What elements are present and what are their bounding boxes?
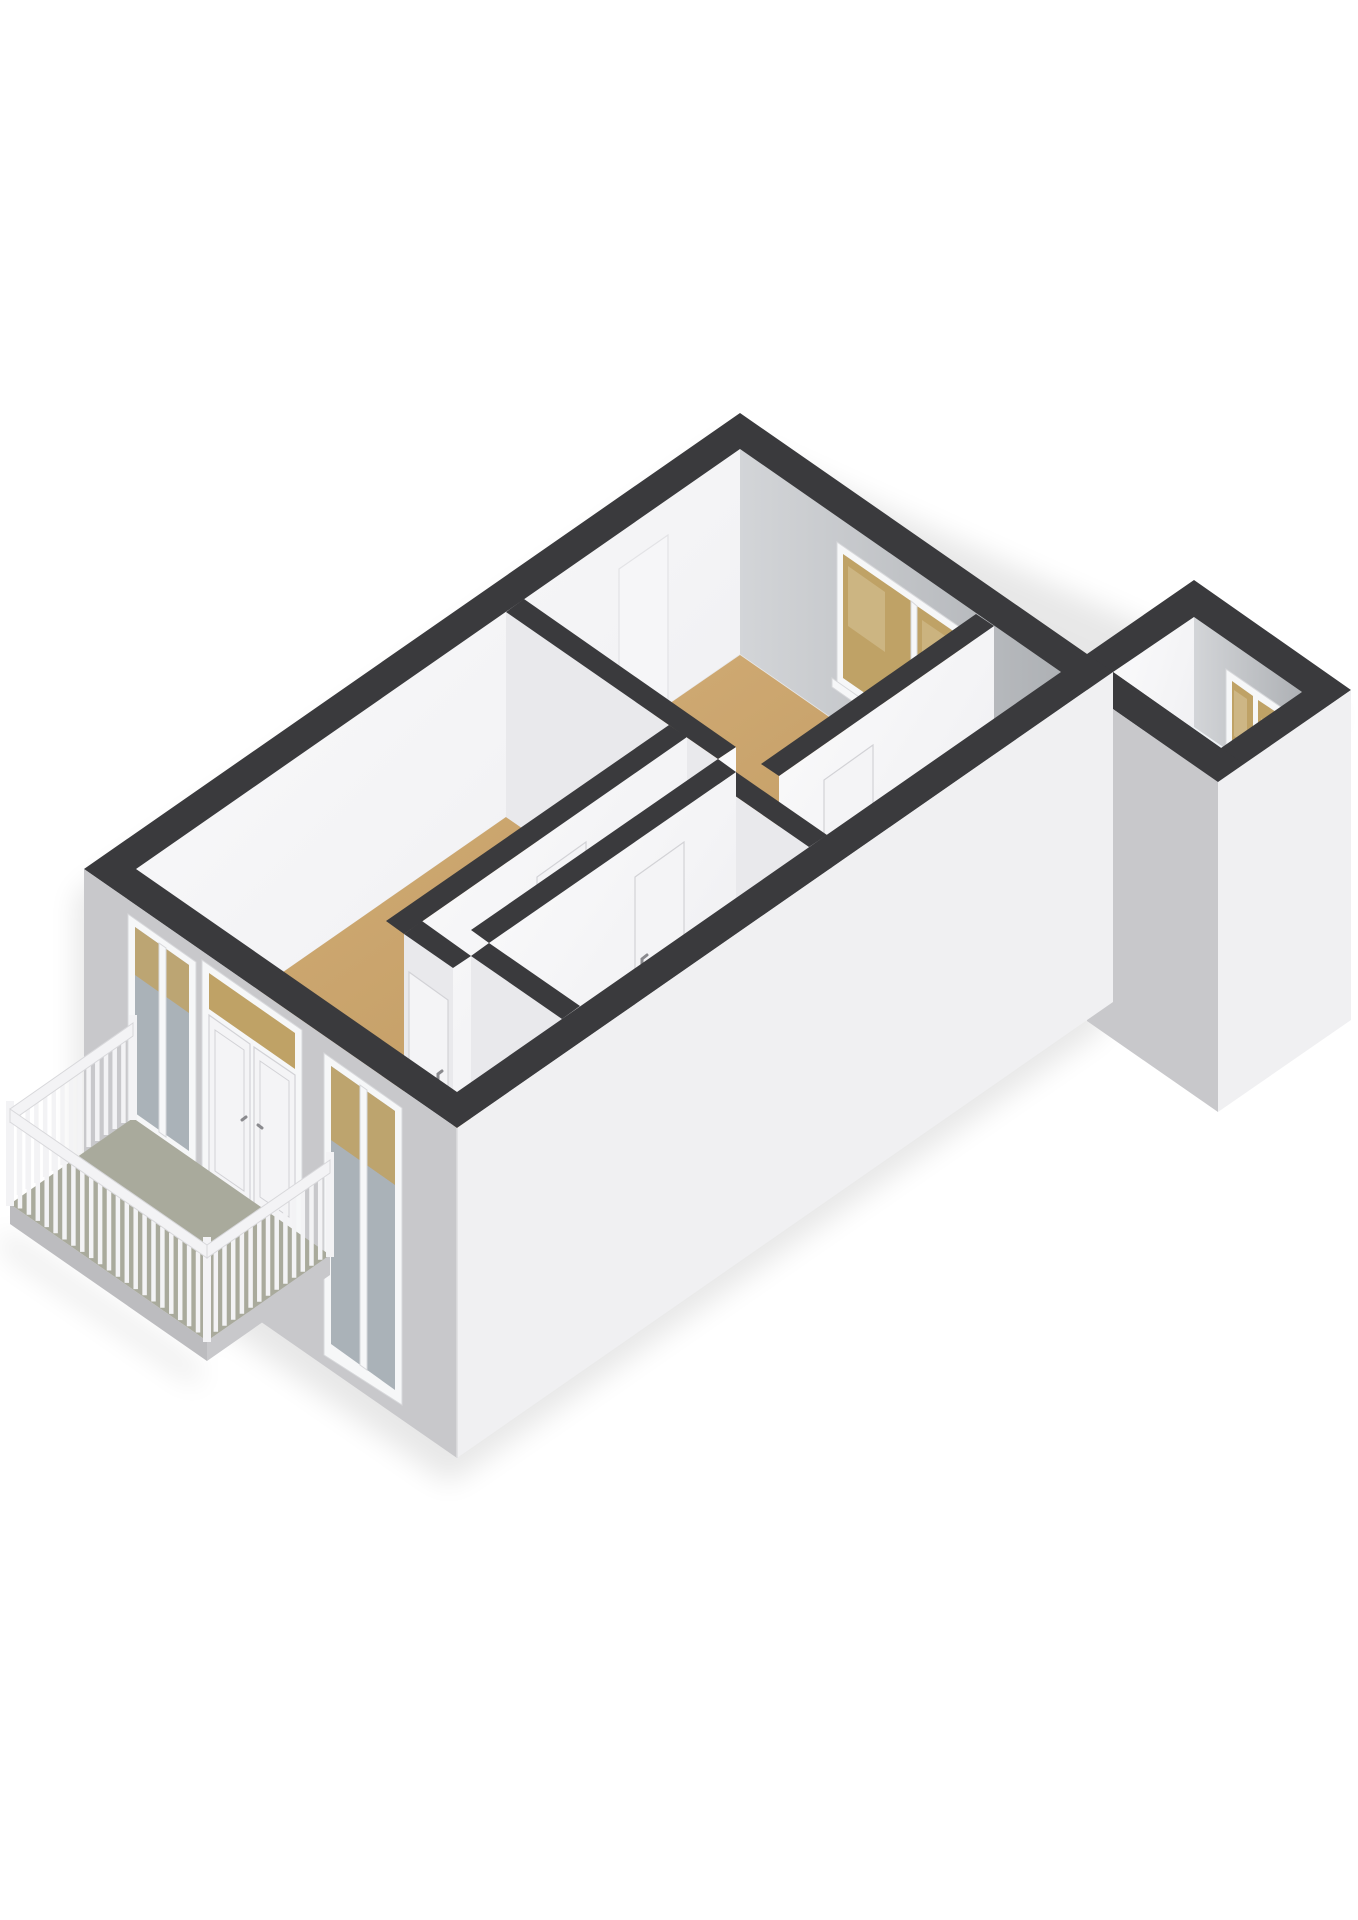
floorplan-viewport[interactable] <box>0 0 1358 1920</box>
bottom-room-window <box>324 1053 402 1405</box>
bottom-room-window-mullion <box>360 1085 367 1370</box>
floorplan-3d-render <box>0 0 1358 1920</box>
balcony-window-mullion <box>159 943 166 1137</box>
